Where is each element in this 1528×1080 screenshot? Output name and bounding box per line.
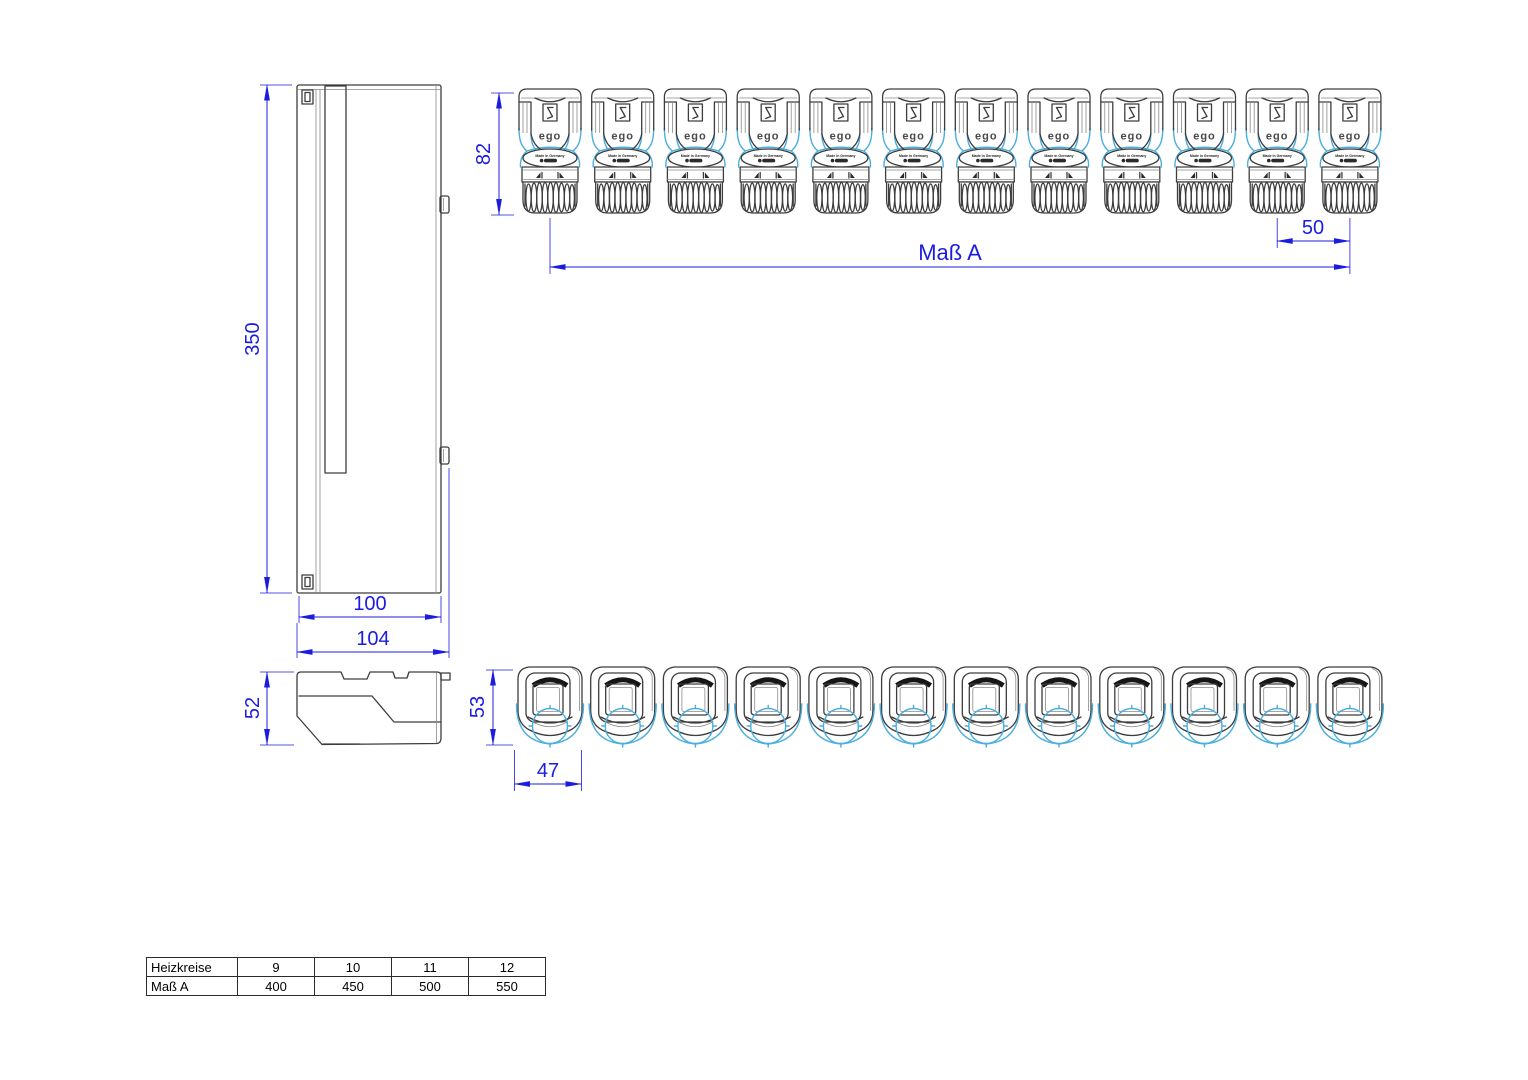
actuator-front-unit [1246, 89, 1308, 213]
table-row: Heizkreise 9 10 11 12 [147, 958, 546, 977]
table-row-label: Heizkreise [147, 958, 238, 977]
actuator-top-unit [517, 667, 584, 747]
table-cell: 550 [469, 977, 546, 996]
actuator-top-unit [589, 667, 656, 747]
actuator-front-unit [883, 89, 945, 213]
table-cell: 12 [469, 958, 546, 977]
actuator-top-unit [1171, 667, 1238, 747]
dim-label-mass-a: Maß A [918, 240, 982, 265]
dim-label-82: 82 [473, 143, 495, 165]
dim-enclosure-depth: 52 [242, 672, 294, 745]
dim-label-350: 350 [242, 322, 264, 355]
dim-label-47: 47 [537, 760, 559, 782]
table-row: Maß A 400 450 500 550 [147, 977, 546, 996]
actuator-top-unit [1244, 667, 1311, 747]
table-cell: 10 [315, 958, 392, 977]
dim-actuator-pitch: 50 [1277, 217, 1350, 248]
table-cell: 400 [238, 977, 315, 996]
actuator-top-unit [735, 667, 802, 747]
dim-actuator-height: 82 [473, 93, 514, 215]
actuator-front-unit [1028, 89, 1090, 213]
drawing-canvas: ego Made in Germany [0, 0, 1528, 1080]
dim-label-50: 50 [1302, 217, 1324, 239]
dimension-table: Heizkreise 9 10 11 12 Maß A 400 450 500 … [146, 957, 546, 996]
actuator-front-unit [955, 89, 1017, 213]
enclosure-top-view [297, 672, 450, 745]
actuator-front-unit [1319, 89, 1381, 213]
technical-drawing: ego Made in Germany [0, 0, 1528, 1080]
table-row-label: Maß A [147, 977, 238, 996]
actuator-top-row [517, 667, 1384, 747]
table-cell: 450 [315, 977, 392, 996]
actuator-top-unit [1316, 667, 1383, 747]
actuator-front-unit [519, 89, 581, 213]
dim-enclosure-width: 100 [299, 593, 441, 623]
table-cell: 500 [392, 977, 469, 996]
dim-actuator-top-width: 47 [515, 750, 582, 791]
actuator-front-unit [810, 89, 872, 213]
actuator-top-unit [880, 667, 947, 747]
actuator-front-unit [1174, 89, 1236, 213]
actuator-top-unit [1026, 667, 1093, 747]
dim-label-52: 52 [242, 697, 264, 719]
dim-actuator-top-depth: 53 [467, 670, 513, 745]
dim-overall-width: Maß A [550, 218, 1350, 274]
dim-label-100: 100 [353, 593, 386, 615]
actuator-top-unit [953, 667, 1020, 747]
table-cell: 11 [392, 958, 469, 977]
dim-label-53: 53 [467, 696, 489, 718]
enclosure-front-view [297, 85, 449, 593]
actuator-front-unit [664, 89, 726, 213]
table-cell: 9 [238, 958, 315, 977]
actuator-front-row [519, 89, 1381, 213]
actuator-top-unit [1098, 667, 1165, 747]
actuator-front-unit [1101, 89, 1163, 213]
actuator-front-unit [592, 89, 654, 213]
actuator-top-unit [662, 667, 729, 747]
dim-enclosure-height: 350 [242, 85, 292, 593]
dim-label-104: 104 [356, 628, 389, 650]
actuator-front-unit [737, 89, 799, 213]
actuator-top-unit [807, 667, 874, 747]
